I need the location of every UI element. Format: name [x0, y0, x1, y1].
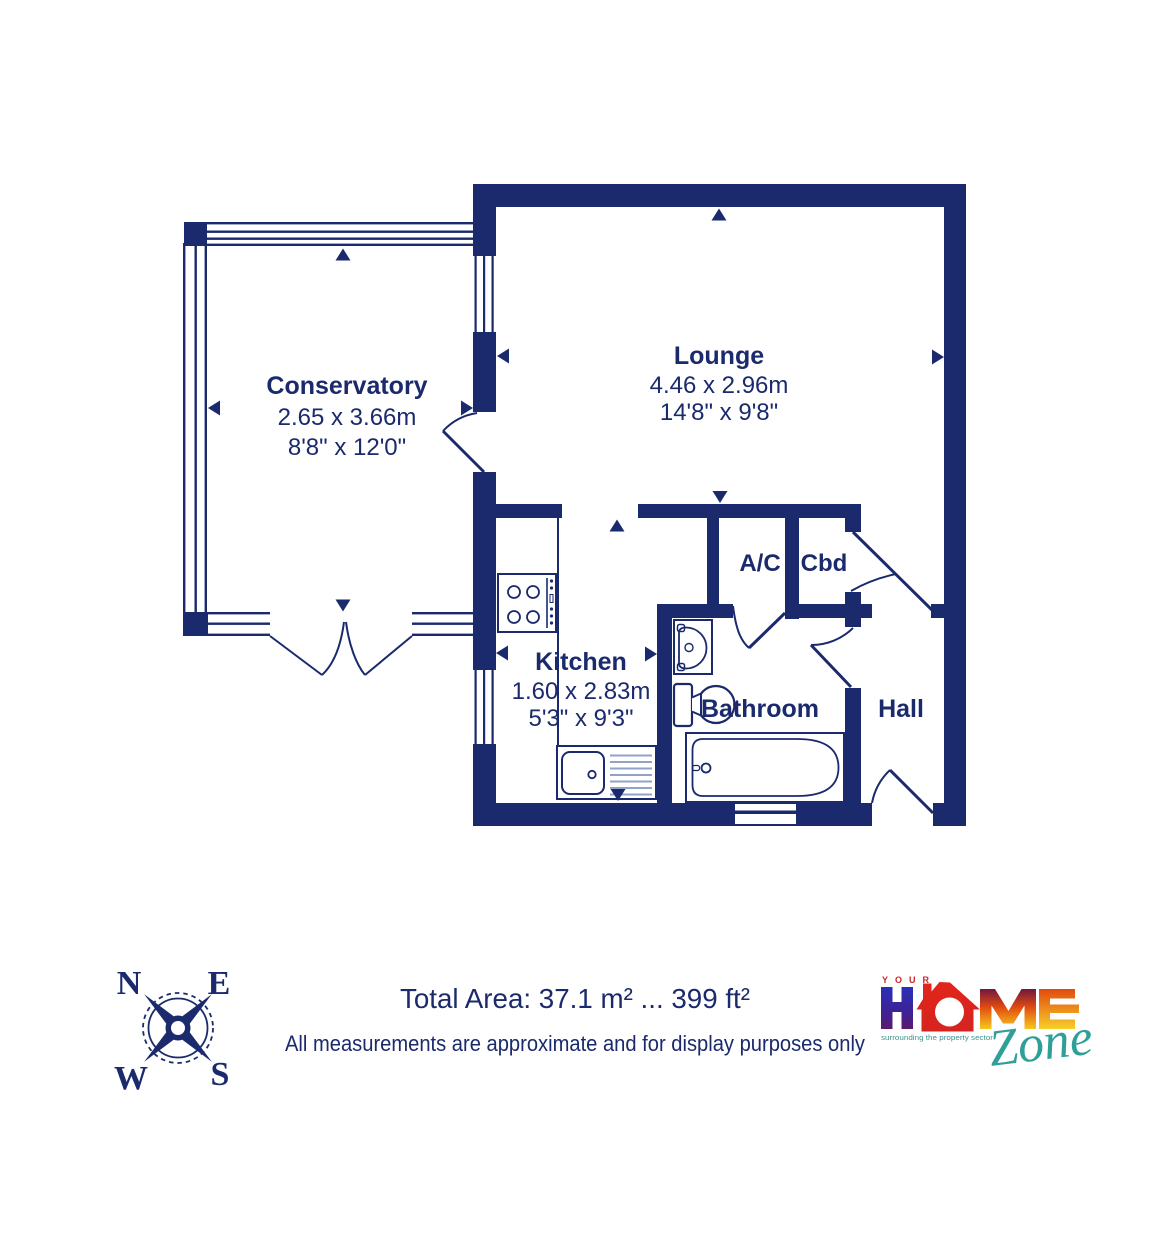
svg-text:4.46 x 2.96m: 4.46 x 2.96m — [650, 372, 789, 399]
svg-text:Conservatory: Conservatory — [266, 372, 427, 400]
svg-text:All measurements are approxima: All measurements are approximate and for… — [285, 1031, 865, 1056]
svg-text:W: W — [114, 1060, 148, 1097]
svg-text:E: E — [208, 965, 231, 1002]
svg-text:Kitchen: Kitchen — [535, 648, 627, 676]
svg-text:Hall: Hall — [878, 695, 924, 723]
svg-text:Total Area: 37.1 m² ... 399 ft: Total Area: 37.1 m² ... 399 ft² — [400, 983, 750, 1014]
svg-text:Lounge: Lounge — [674, 342, 764, 370]
svg-text:surrounding the property secto: surrounding the property sector — [881, 1035, 994, 1042]
svg-text:Cbd: Cbd — [801, 550, 848, 577]
svg-text:14'8" x 9'8": 14'8" x 9'8" — [660, 399, 778, 426]
svg-text:Bathroom: Bathroom — [701, 695, 819, 723]
svg-text:1.60 x 2.83m: 1.60 x 2.83m — [512, 678, 651, 705]
svg-text:S: S — [211, 1056, 230, 1093]
svg-text:2.65 x 3.66m: 2.65 x 3.66m — [278, 404, 417, 431]
svg-text:A/C: A/C — [739, 550, 780, 577]
svg-text:5'3" x 9'3": 5'3" x 9'3" — [529, 705, 634, 732]
svg-text:N: N — [117, 965, 142, 1002]
svg-text:8'8" x 12'0": 8'8" x 12'0" — [288, 434, 406, 461]
